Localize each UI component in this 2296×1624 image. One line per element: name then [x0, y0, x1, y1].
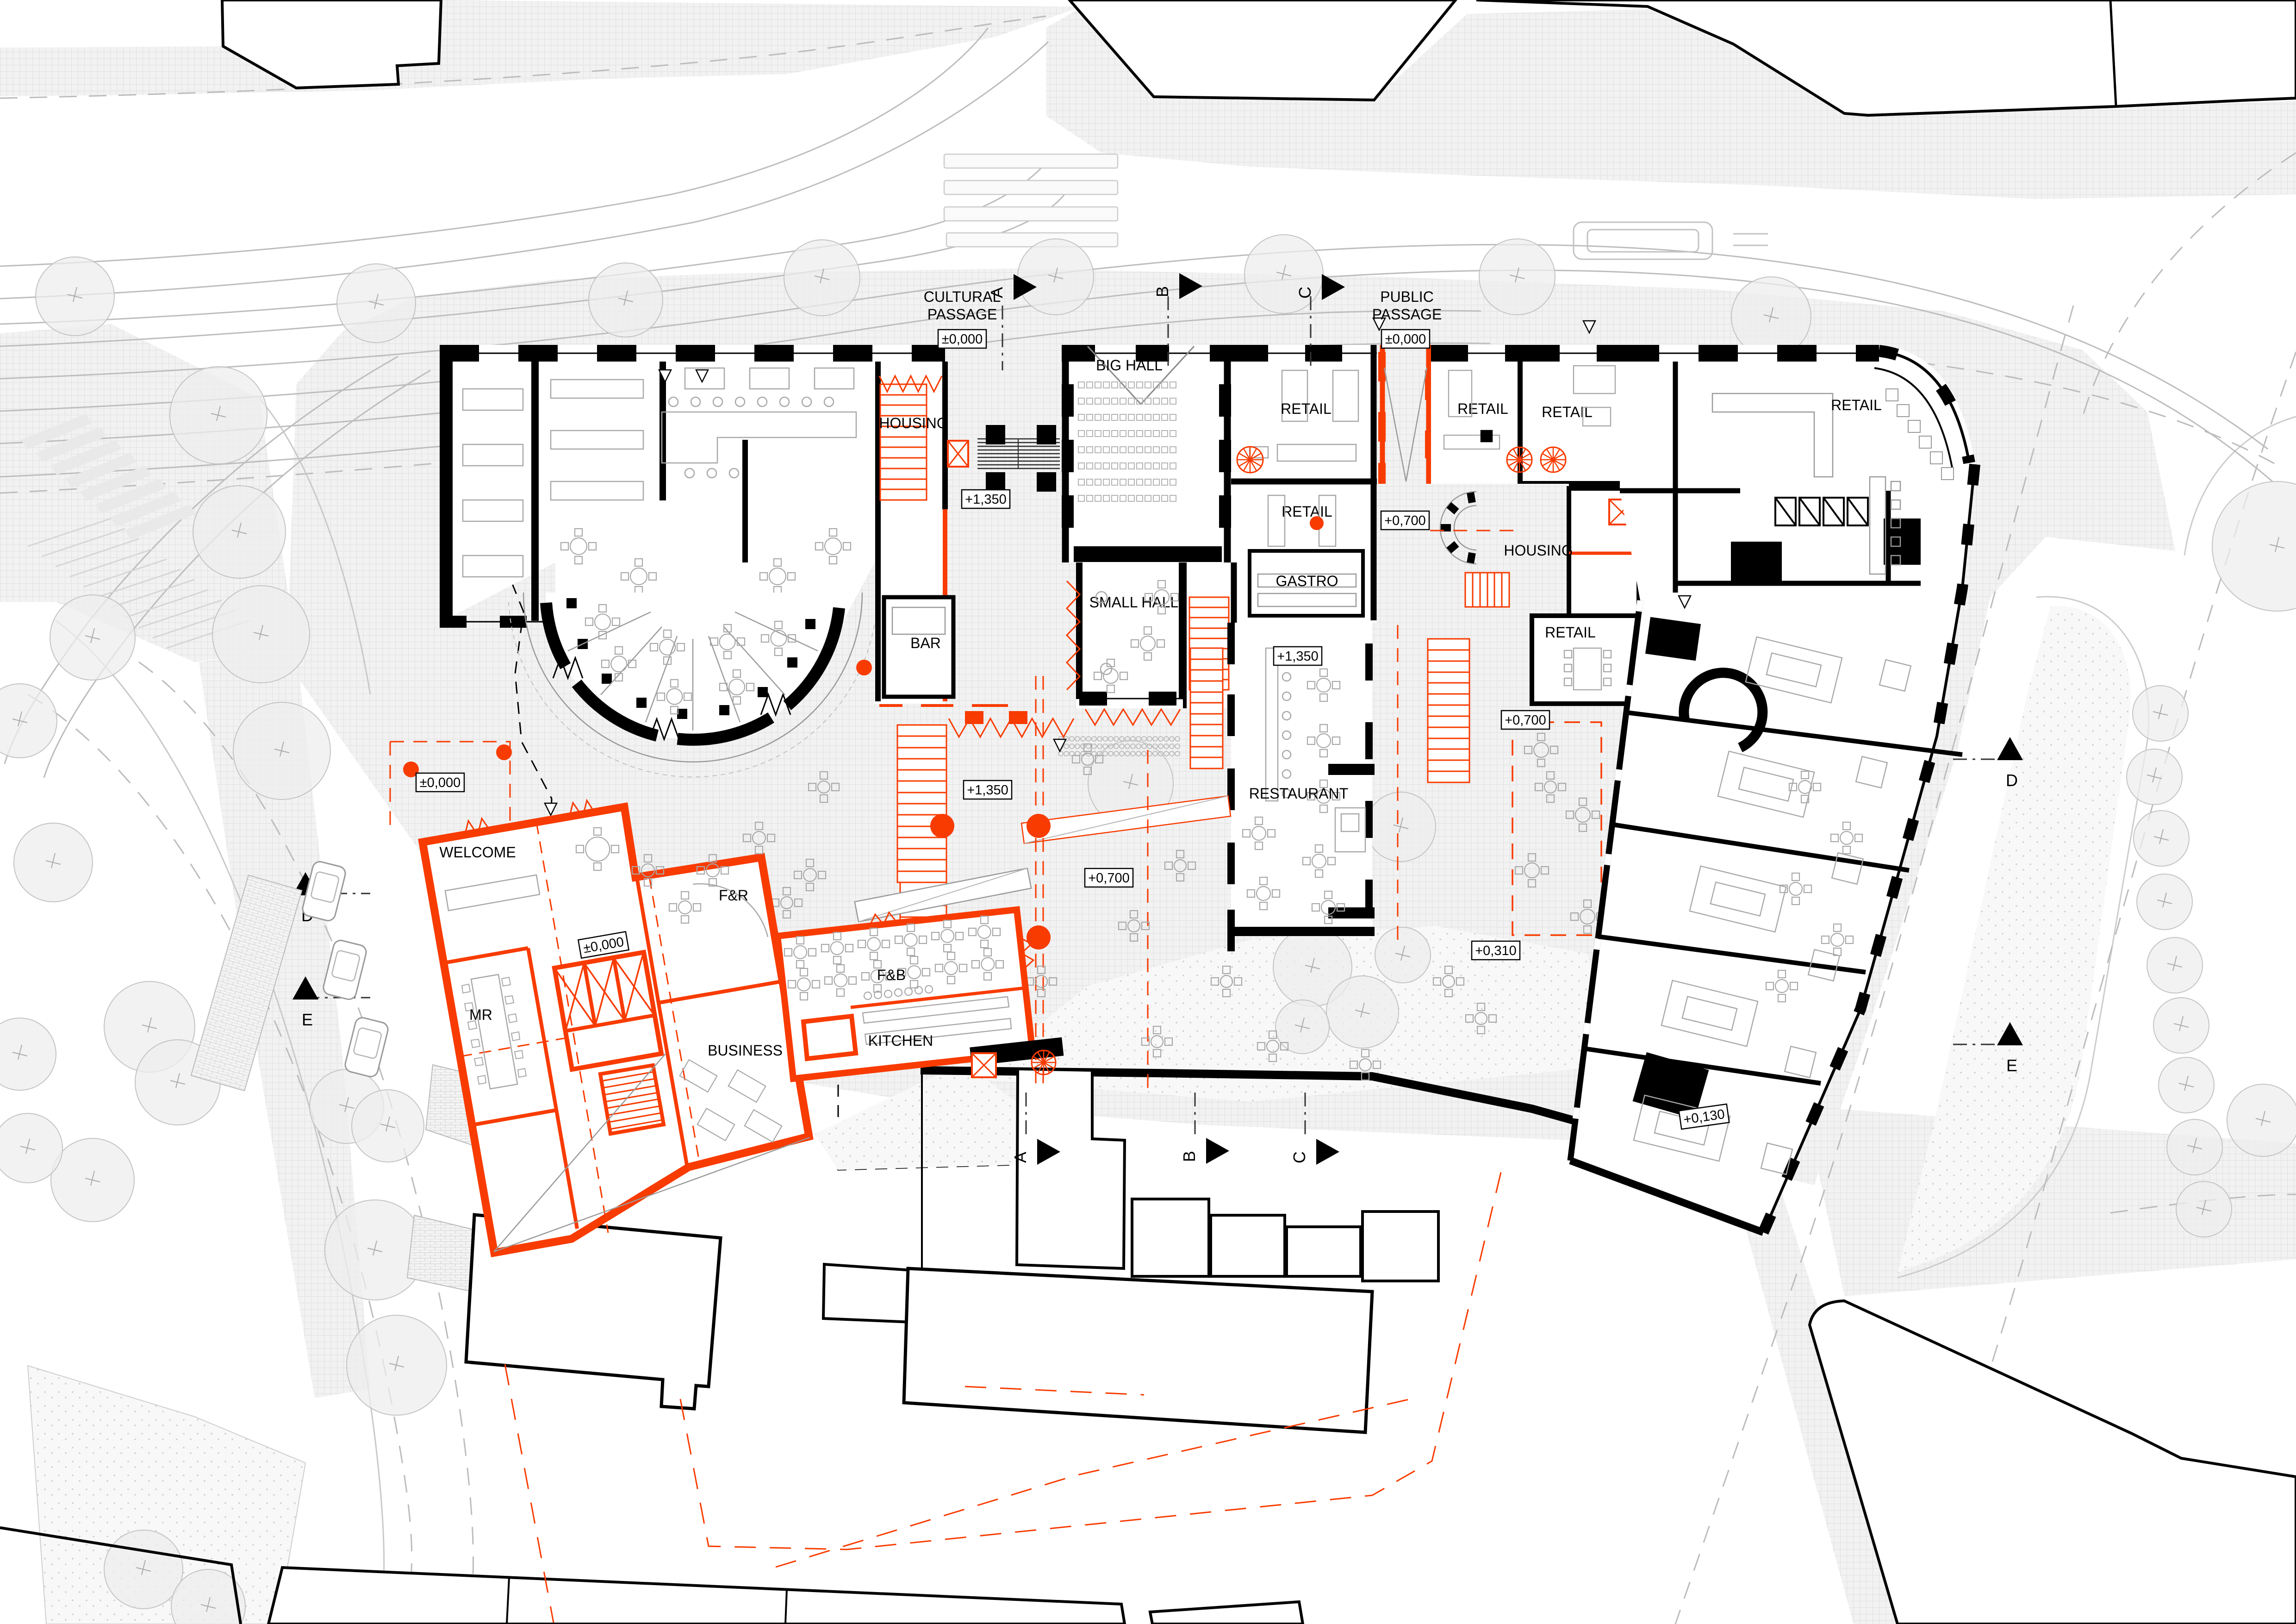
svg-text:±0,000: ±0,000	[942, 332, 983, 347]
svg-text:+0,700: +0,700	[1384, 513, 1426, 528]
svg-text:C: C	[1295, 287, 1314, 299]
svg-text:B: B	[1153, 286, 1172, 297]
svg-text:C: C	[1290, 1151, 1309, 1163]
svg-text:±0,000: ±0,000	[420, 775, 461, 790]
svg-text:BAR: BAR	[910, 635, 941, 651]
svg-text:E: E	[302, 1010, 313, 1029]
svg-text:HOUSING: HOUSING	[1504, 542, 1573, 559]
svg-text:PUBLIC: PUBLIC	[1380, 288, 1434, 305]
svg-text:RETAIL: RETAIL	[1281, 400, 1332, 417]
svg-text:WELCOME: WELCOME	[439, 844, 516, 861]
svg-text:RETAIL: RETAIL	[1282, 503, 1332, 520]
svg-text:+1,350: +1,350	[967, 783, 1008, 798]
svg-text:BUSINESS: BUSINESS	[708, 1042, 783, 1059]
svg-text:+0,700: +0,700	[1505, 713, 1546, 728]
svg-text:A: A	[987, 287, 1006, 298]
svg-text:PASSAGE: PASSAGE	[927, 306, 997, 323]
svg-text:+1,350: +1,350	[1277, 649, 1319, 664]
svg-text:RESTAURANT: RESTAURANT	[1249, 785, 1349, 802]
svg-text:GASTRO: GASTRO	[1276, 573, 1338, 589]
svg-text:RETAIL: RETAIL	[1542, 404, 1593, 420]
svg-text:±0,000: ±0,000	[1385, 332, 1426, 347]
svg-text:HOUSING: HOUSING	[879, 415, 948, 431]
svg-text:D: D	[2006, 771, 2018, 790]
svg-text:+0,700: +0,700	[1088, 871, 1130, 886]
svg-text:MR: MR	[469, 1006, 492, 1023]
svg-text:+0,310: +0,310	[1475, 943, 1517, 958]
svg-text:A: A	[1011, 1152, 1030, 1163]
svg-text:F&R: F&R	[719, 887, 748, 904]
svg-text:RETAIL: RETAIL	[1545, 624, 1596, 641]
svg-text:BIG HALL: BIG HALL	[1096, 357, 1163, 374]
svg-text:+1,350: +1,350	[965, 492, 1007, 507]
svg-text:KITCHEN: KITCHEN	[868, 1032, 933, 1049]
svg-text:B: B	[1180, 1151, 1199, 1162]
svg-text:F&B: F&B	[877, 967, 906, 983]
svg-text:E: E	[2006, 1056, 2017, 1075]
svg-text:RETAIL: RETAIL	[1457, 400, 1508, 417]
svg-text:RETAIL: RETAIL	[1831, 397, 1882, 413]
svg-text:PASSAGE: PASSAGE	[1372, 306, 1442, 323]
